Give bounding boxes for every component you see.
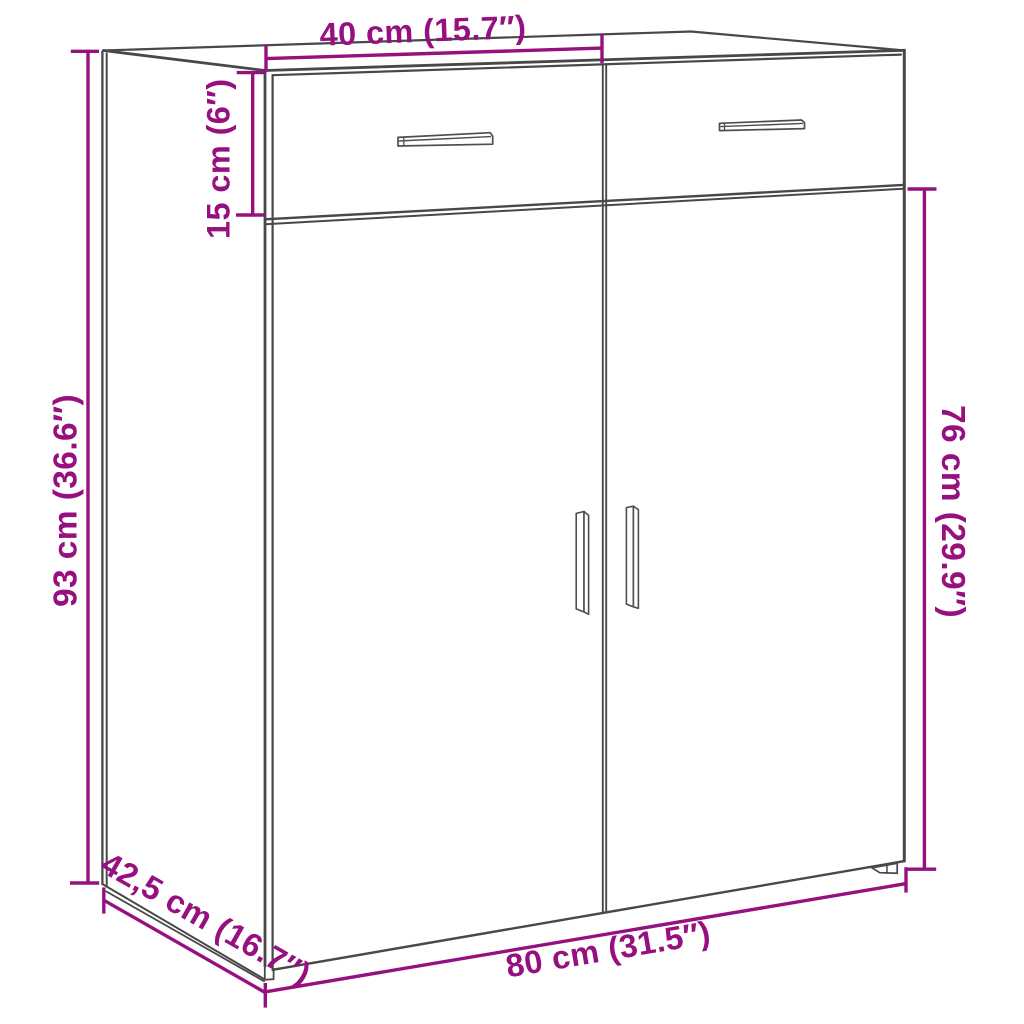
svg-text:93 cm (36.6″): 93 cm (36.6″) — [48, 394, 85, 607]
svg-text:15 cm (6″): 15 cm (6″) — [201, 79, 237, 239]
svg-text:76 cm (29.9″): 76 cm (29.9″) — [934, 405, 971, 618]
